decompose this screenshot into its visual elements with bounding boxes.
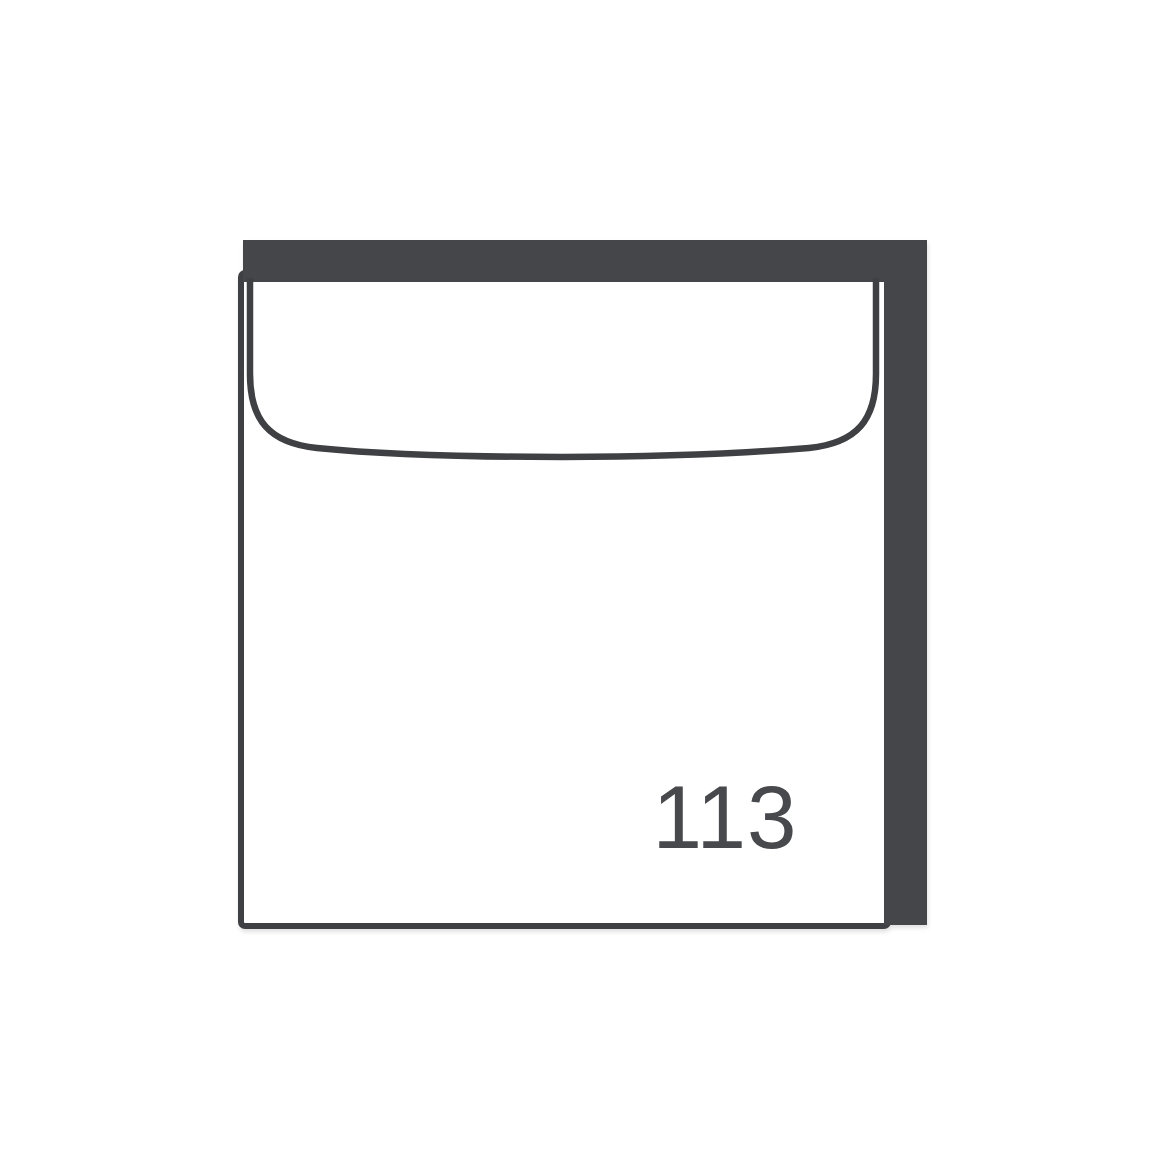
module-width-label: 113 xyxy=(653,767,798,867)
canvas: 113 xyxy=(0,0,1170,1170)
backrest-bar xyxy=(243,240,886,282)
armrest-bar xyxy=(884,240,927,925)
sofa-module-group: 113 xyxy=(241,240,927,926)
sofa-module-diagram[interactable]: 113 xyxy=(0,0,1170,1170)
